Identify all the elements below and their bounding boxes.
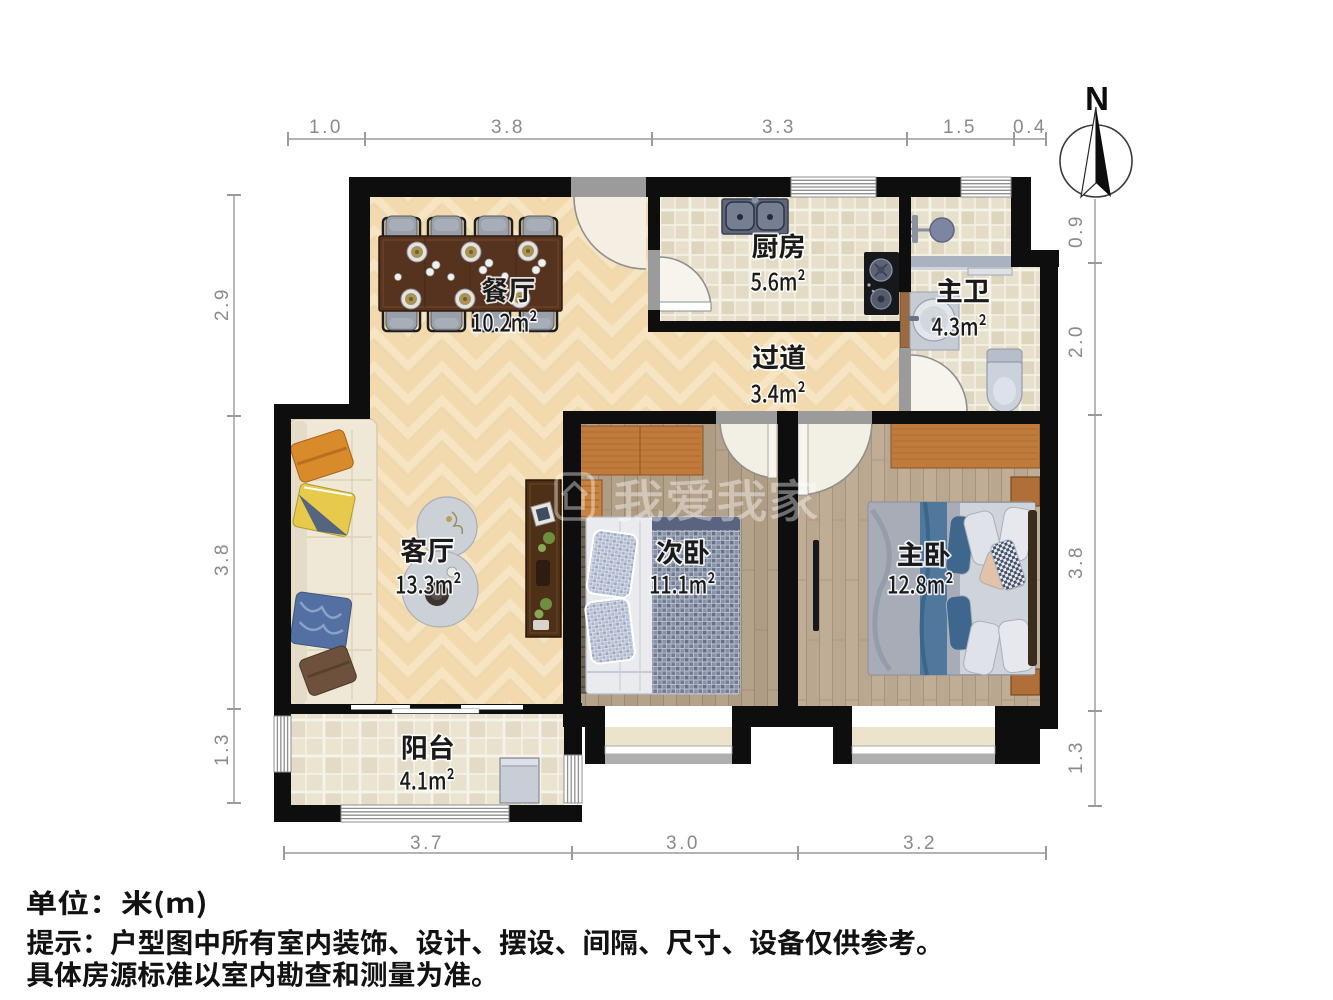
svg-text:3.8: 3.8 bbox=[212, 542, 233, 576]
svg-text:2.0: 2.0 bbox=[1066, 324, 1087, 358]
svg-text:3.8: 3.8 bbox=[491, 117, 525, 138]
svg-text:2.9: 2.9 bbox=[212, 287, 233, 321]
svg-text:3.7: 3.7 bbox=[410, 833, 444, 854]
svg-text:3.2: 3.2 bbox=[903, 833, 937, 854]
svg-text:3.0: 3.0 bbox=[666, 833, 700, 854]
svg-text:1.3: 1.3 bbox=[212, 732, 233, 766]
svg-text:1.5: 1.5 bbox=[943, 117, 977, 138]
svg-text:N: N bbox=[1085, 80, 1109, 117]
svg-text:0.9: 0.9 bbox=[1066, 214, 1087, 248]
svg-text:1.3: 1.3 bbox=[1066, 740, 1087, 774]
svg-text:3.3: 3.3 bbox=[762, 117, 796, 138]
svg-text:0.4: 0.4 bbox=[1013, 117, 1047, 138]
svg-text:1.0: 1.0 bbox=[309, 117, 343, 138]
svg-text:3.8: 3.8 bbox=[1066, 545, 1087, 579]
